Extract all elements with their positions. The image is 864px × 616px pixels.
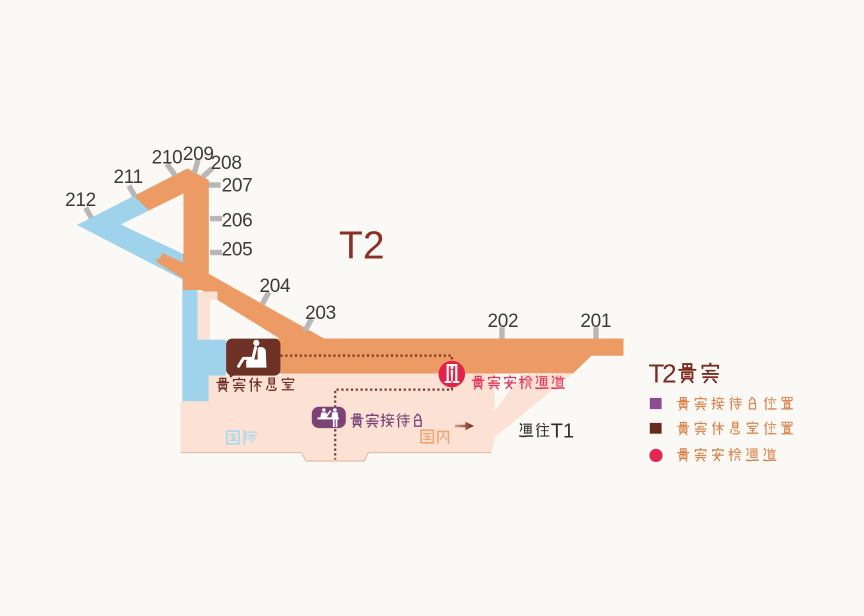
svg-text:207: 207 <box>222 176 253 197</box>
svg-text:T2: T2 <box>649 359 677 389</box>
svg-text:203: 203 <box>305 303 336 324</box>
svg-text:209: 209 <box>183 144 214 165</box>
svg-text:204: 204 <box>259 276 291 297</box>
svg-text:208: 208 <box>211 153 242 174</box>
svg-text:201: 201 <box>580 311 611 332</box>
svg-text:212: 212 <box>65 190 96 211</box>
svg-text:205: 205 <box>222 239 253 260</box>
svg-text:T2: T2 <box>339 225 385 268</box>
svg-text:210: 210 <box>152 147 183 168</box>
svg-text:211: 211 <box>114 167 143 188</box>
svg-text:T1: T1 <box>551 420 574 442</box>
svg-text:206: 206 <box>222 210 253 231</box>
svg-text:202: 202 <box>487 311 518 332</box>
